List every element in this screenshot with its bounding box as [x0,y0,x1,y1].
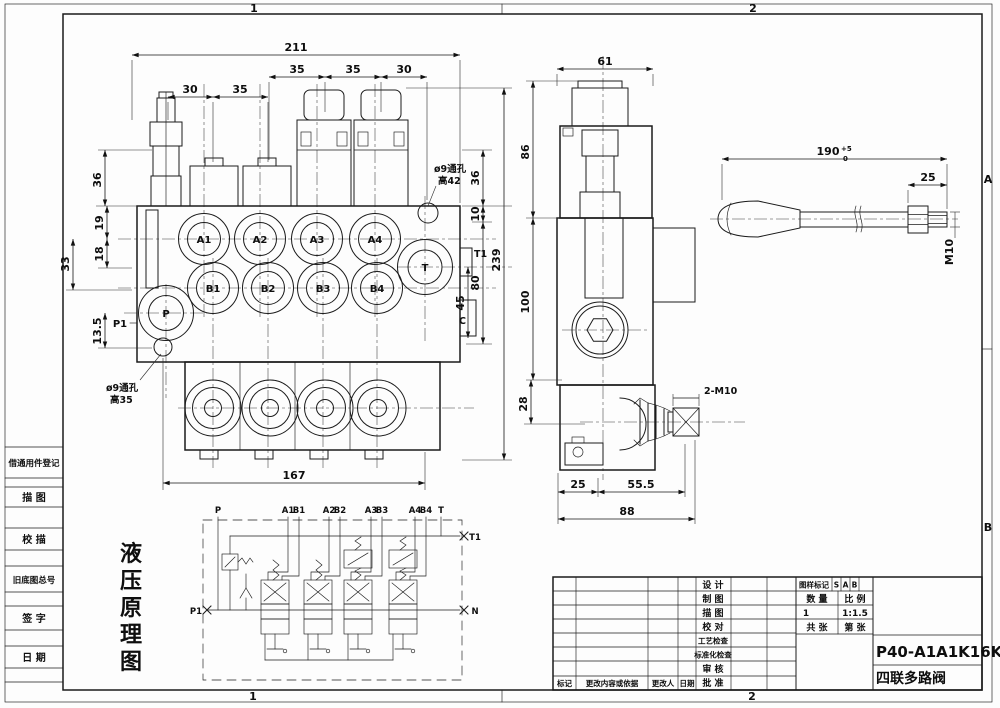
handle-view: 190 +5 0 25 M10 [710,145,960,265]
margin-label-check-tracing: 校 描 [22,533,45,546]
sch-port-t: T [438,506,444,516]
tb-stamp-a: A [843,581,849,590]
tb-row-design: 设 计 [702,579,723,591]
caption-char-3: 原 [120,596,142,621]
sch-port-b4: B4 [420,506,432,516]
dim-13-5: 13.5 [91,317,104,344]
tb-row-standard: 标准化检查 [693,650,732,660]
margin-label-old-drawing-no: 旧底图总号 [13,575,56,586]
dim-18: 18 [93,246,106,261]
dim-30r: 30 [396,63,412,76]
zone-right-a: A [984,173,993,186]
dim-80: 80 [469,275,482,291]
tb-part-number: P40-A1A1K16K16 [876,643,1000,661]
dim-88: 88 [619,505,634,518]
dim-30l: 30 [182,83,198,96]
label-2-m10: 2-M10 [704,386,738,397]
caption-char-2: 压 [120,569,142,594]
sch-port-p1: P1 [190,607,202,617]
sch-port-p: P [215,506,221,516]
handle-dimensions: 190 +5 0 25 M10 [722,145,960,265]
tb-part-name: 四联多路阀 [876,670,946,687]
dim-25-handle: 25 [920,171,935,184]
port-a2: A2 [253,235,268,246]
port-b3: B3 [316,284,331,295]
dim-190: 190 [817,145,840,158]
margin-label-tracing: 描 图 [22,491,45,504]
tb-sheet-no: 第 张 [844,622,866,634]
zone-top-2: 2 [749,2,757,15]
tb-scale-value: 1:1.5 [842,609,868,619]
port-c: C [459,316,466,327]
tb-row-review: 审 核 [702,663,723,675]
margin-label-common-parts: 借通用件登记 [7,458,60,469]
tb-total-sheets: 共 张 [806,622,828,634]
dim-33: 33 [59,256,72,271]
left-margin-cells: 借通用件登记 描 图 校 描 旧底图总号 签 字 日 期 [5,447,63,682]
title-block: 设 计 制 图 描 图 校 对 工艺检查 标准化检查 审 核 批 准 标记 更改… [553,577,1000,690]
tb-qty-value: 1 [803,609,809,619]
tb-qty-label: 数 量 [806,593,827,605]
front-dimensions: 211 35 35 30 30 35 36 19 18 33 13.5 [59,41,512,490]
dim-167: 167 [283,469,306,482]
dim-239: 239 [490,249,503,272]
hydraulic-schematic: 液 压 原 理 图 P A1 B1 A2 B2 A3 B3 A4 B4 T T1… [120,506,481,680]
port-a1: A1 [197,235,212,246]
tb-row-approve: 批 准 [702,677,723,689]
tb-stamp-s: S [834,581,839,590]
dim-45: 45 [454,295,467,310]
caption-char-1: 液 [120,541,142,567]
sch-port-b3: B3 [376,506,388,516]
side-body [557,81,699,470]
tb-bottom-mark: 标记 [556,678,572,688]
dim-61: 61 [597,55,612,68]
sch-port-n: N [471,607,478,617]
schematic-caption: 液 压 原 理 图 [120,541,142,675]
dim-35b: 35 [345,63,360,76]
dim-19: 19 [93,215,106,230]
dim-190-tol-dn: 0 [843,155,848,163]
sch-port-t1: T1 [469,533,481,543]
note-hole-bottom-line1: ø9通孔 [106,382,139,394]
tb-bottom-date: 日期 [680,678,695,688]
port-p: P [162,309,169,320]
dim-35l: 35 [232,83,247,96]
port-a4: A4 [368,235,383,246]
schematic-circuit [203,517,468,660]
tb-row-check: 校 对 [702,621,723,633]
title-block-labels: 设 计 制 图 描 图 校 对 工艺检查 标准化检查 审 核 批 准 标记 更改… [556,579,1000,689]
tb-bottom-changer: 更改人 [652,678,675,688]
port-b1: B1 [206,284,221,295]
margin-label-signature: 签 字 [21,612,45,625]
dim-36l: 36 [91,172,104,188]
port-a3: A3 [310,235,325,246]
port-t1: T1 [474,249,487,260]
tb-bottom-change-content: 更改内容或依据 [586,678,639,688]
drawing-sheet: 1 2 1 2 A B 借通用件登记 描 图 校 描 旧底图总号 签 字 日 期 [0,0,1000,708]
zone-right-b: B [984,521,992,534]
dim-28: 28 [517,396,530,411]
sch-port-b2: B2 [334,506,346,516]
dim-100: 100 [519,290,532,313]
note-hole-top-line1: ø9通孔 [434,163,467,175]
dim-190-tol-up: +5 [841,145,852,153]
side-view: 61 86 100 28 25 55.5 88 2-M10 [517,55,745,524]
dim-36r: 36 [469,170,482,186]
schematic-port-labels: P A1 B1 A2 B2 A3 B3 A4 B4 T T1 N P1 [190,506,481,617]
tb-stamp-mark: 图样标记 [799,580,829,590]
front-view: A1 A2 A3 A4 B1 B2 B3 B4 T P P1 T1 C 211 … [59,41,512,490]
sch-port-b1: B1 [293,506,305,516]
zone-bottom-1: 1 [249,690,257,703]
cad-drawing: 1 2 1 2 A B 借通用件登记 描 图 校 描 旧底图总号 签 字 日 期 [0,0,1000,708]
dim-211: 211 [285,41,308,54]
port-b2: B2 [261,284,276,295]
dim-25-side: 25 [570,478,585,491]
note-hole-top-line2: 高42 [438,175,461,187]
port-p1: P1 [113,319,127,330]
front-centerlines [118,84,512,468]
tb-row-draft: 制 图 [702,593,723,605]
dim-86: 86 [519,144,532,160]
front-ports: A1 A2 A3 A4 B1 B2 B3 B4 T P P1 T1 C [113,203,487,356]
dim-35a: 35 [289,63,304,76]
note-hole-bottom-line2: 高35 [110,394,133,406]
label-m10: M10 [943,239,956,266]
tb-scale-label: 比 例 [844,593,865,605]
port-t: T [422,263,429,274]
port-b4: B4 [370,284,385,295]
zone-bottom-2: 2 [748,690,756,703]
dim-10: 10 [469,206,482,222]
tb-row-trace: 描 图 [702,607,723,619]
front-hole-notes: ø9通孔 高42 ø9通孔 高35 [106,163,467,406]
dim-55-5: 55.5 [627,478,654,491]
tb-stamp-b: B [852,581,858,590]
tb-row-process: 工艺检查 [698,636,728,646]
zone-top-1: 1 [250,2,258,15]
caption-char-4: 理 [120,623,142,648]
caption-char-5: 图 [120,650,142,675]
margin-label-date: 日 期 [22,651,45,664]
